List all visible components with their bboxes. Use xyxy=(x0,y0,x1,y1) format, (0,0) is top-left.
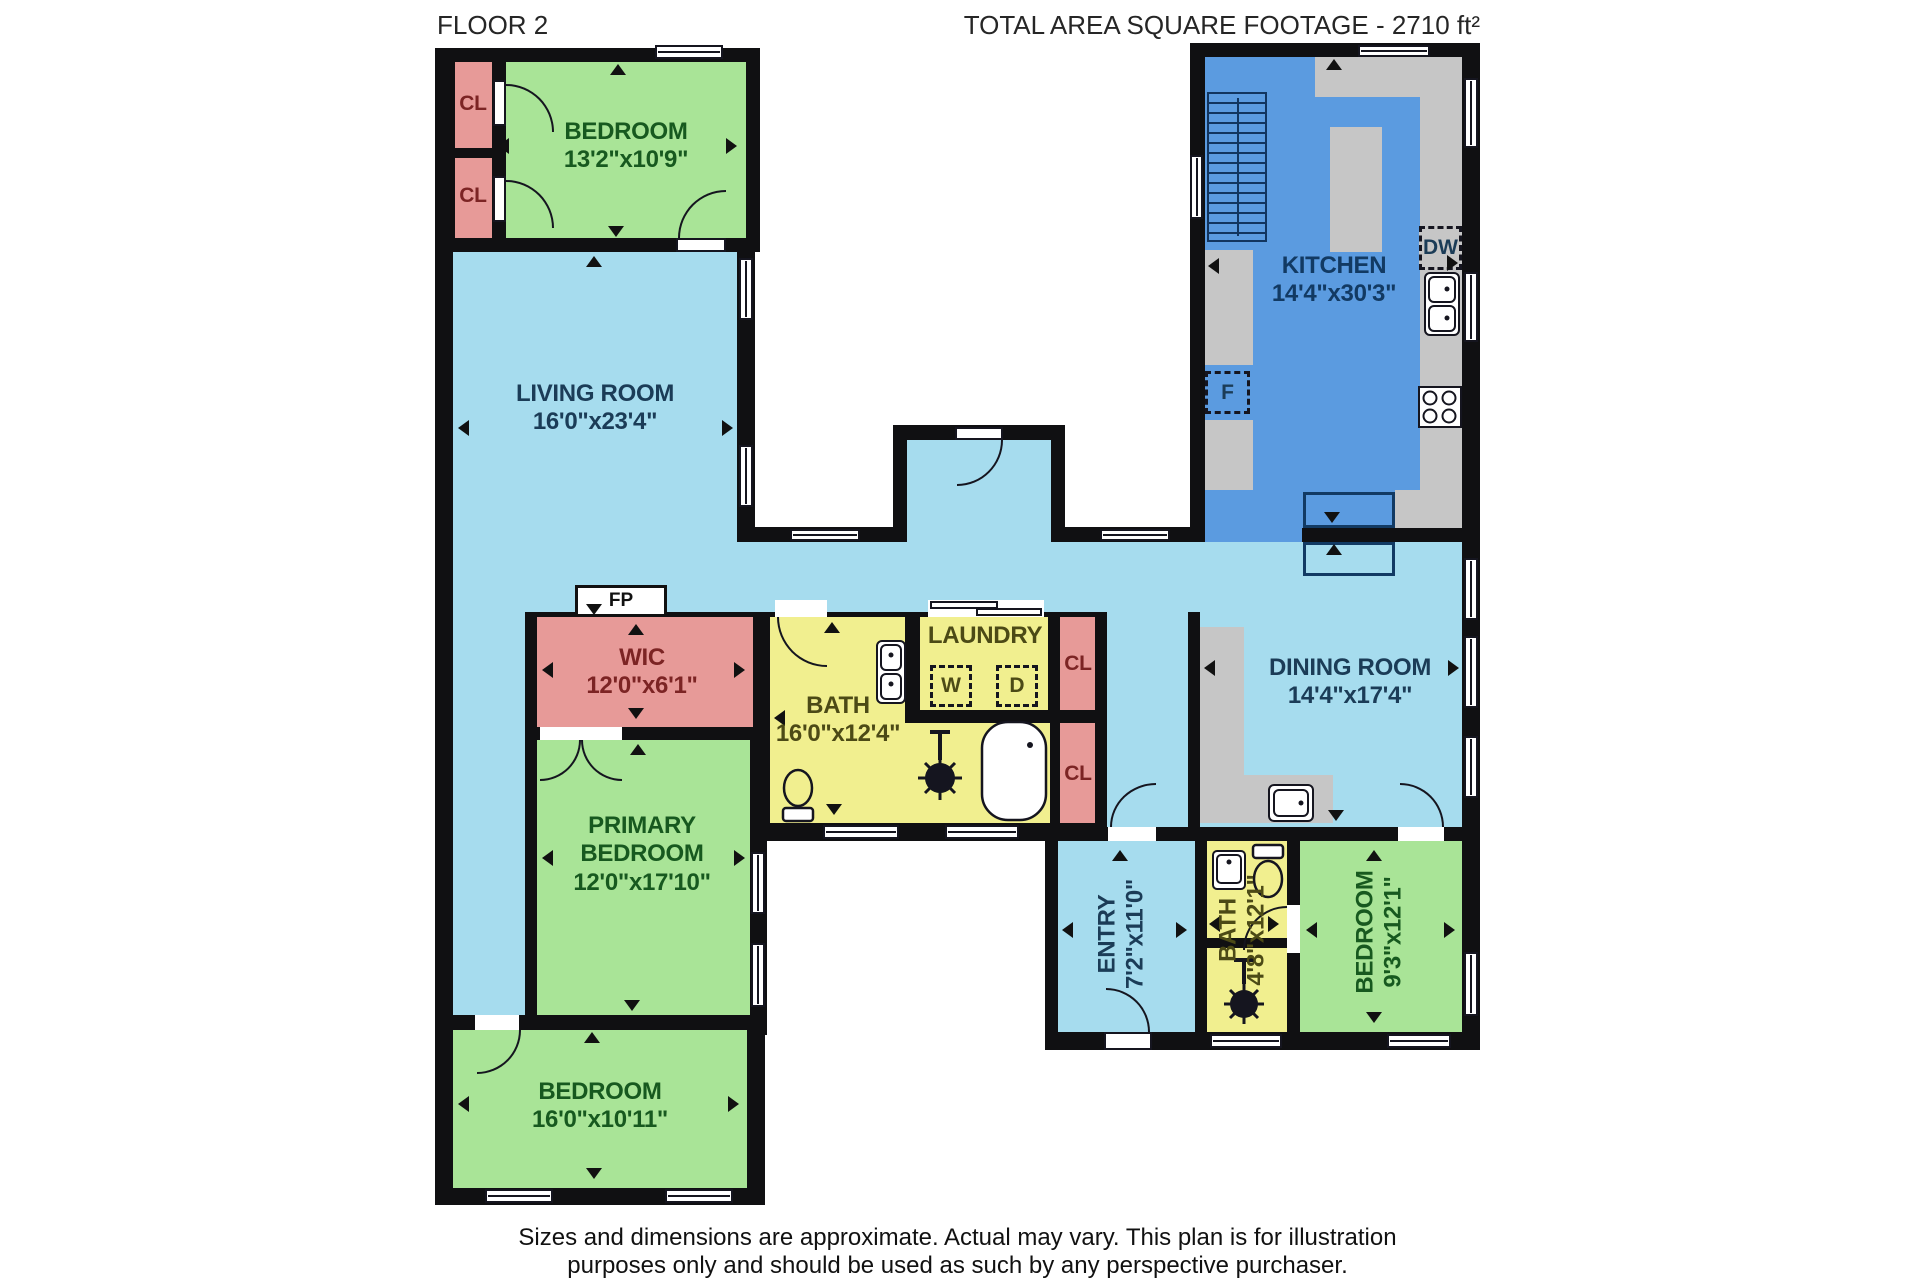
bath-main-toilet-icon xyxy=(778,768,818,824)
arrow-icon xyxy=(734,662,745,678)
living-room-label: LIVING ROOM 16'0"x23'4" xyxy=(516,380,674,437)
window xyxy=(1358,45,1430,57)
closet-text: CL xyxy=(459,92,486,117)
window xyxy=(1464,78,1478,148)
arrow-icon xyxy=(728,1096,739,1112)
room-dims: 14'4"x30'3" xyxy=(1272,280,1396,308)
arrow-icon xyxy=(734,850,745,866)
bedroom-top-left-label: BEDROOM 13'2"x10'9" xyxy=(564,118,688,175)
window xyxy=(1387,1034,1451,1048)
arrow-icon xyxy=(1306,922,1317,938)
floor-plan: FLOOR 2 TOTAL AREA SQUARE FOOTAGE - 2710… xyxy=(0,0,1920,1280)
arrow-icon xyxy=(1326,59,1342,70)
kitchen-sink-icon xyxy=(1424,272,1460,336)
room-name: WIC xyxy=(586,644,697,672)
arrow-icon xyxy=(824,622,840,633)
arrow-icon xyxy=(458,420,469,436)
room-name: BEDROOM xyxy=(573,840,710,868)
arrow-icon xyxy=(608,226,624,237)
window xyxy=(1464,272,1478,342)
floor-title: FLOOR 2 xyxy=(437,10,548,41)
window xyxy=(1464,952,1478,1016)
alcove-door xyxy=(955,427,1003,440)
closet-text: CL xyxy=(1064,652,1091,677)
window xyxy=(823,825,899,839)
window xyxy=(1464,558,1478,620)
laundry-slider-panel-2 xyxy=(976,608,1042,616)
living-strip xyxy=(453,612,525,1015)
window xyxy=(485,1189,553,1203)
bath-main-label: BATH 16'0"x12'4" xyxy=(776,692,900,749)
stove-icon xyxy=(1418,386,1462,428)
closet-text: CL xyxy=(1064,762,1091,787)
room-name: BEDROOM xyxy=(1352,870,1380,993)
bath-small-door-gap xyxy=(1287,905,1300,953)
arrow-icon xyxy=(586,256,602,267)
fridge: F xyxy=(1205,371,1250,414)
window xyxy=(1100,529,1170,541)
room-name: DINING ROOM xyxy=(1269,654,1431,682)
dining-room-top xyxy=(1097,542,1462,612)
arrow-icon xyxy=(584,1032,600,1043)
fridge-label: F xyxy=(1221,381,1234,405)
window xyxy=(739,258,753,320)
arrow-icon xyxy=(1112,850,1128,861)
arrow-icon xyxy=(1366,1012,1382,1023)
window xyxy=(665,1189,733,1203)
wall-bath-laundry xyxy=(905,617,920,723)
room-dims: 7'2"x11'0" xyxy=(1122,879,1150,989)
fireplace-arrow-icon xyxy=(586,604,602,615)
arrow-icon xyxy=(1324,512,1340,523)
window xyxy=(655,45,723,59)
window xyxy=(1464,736,1478,798)
arrow-icon xyxy=(586,1168,602,1179)
window xyxy=(790,529,860,541)
total-area-title: TOTAL AREA SQUARE FOOTAGE - 2710 ft² xyxy=(900,10,1480,41)
bedroom-bottom-right-label: BEDROOM 9'3"x12'1" xyxy=(1352,870,1409,993)
dining-counter-vertical xyxy=(1200,627,1244,790)
closet-1-door xyxy=(493,80,506,126)
room-name: LIVING ROOM xyxy=(516,380,674,408)
room-name: BEDROOM xyxy=(532,1078,668,1106)
room-dims: 12'0"x6'1" xyxy=(586,672,697,700)
arrow-icon xyxy=(1208,258,1219,274)
laundry-label: LAUNDRY xyxy=(928,622,1042,650)
disclaimer-line-2: purposes only and should be used as such… xyxy=(435,1252,1480,1280)
dryer: D xyxy=(996,665,1038,707)
shower-icon xyxy=(918,728,962,808)
closet-3-label: CL xyxy=(1064,652,1091,677)
window xyxy=(751,852,765,914)
dining-room-label: DINING ROOM 14'4"x17'4" xyxy=(1269,654,1431,711)
staircase xyxy=(1207,92,1267,242)
wic-double-door-gap xyxy=(540,727,622,740)
arrow-icon xyxy=(624,1000,640,1011)
room-dims: 12'0"x17'10" xyxy=(573,869,710,897)
arrow-icon xyxy=(610,64,626,75)
arrow-icon xyxy=(628,624,644,635)
room-name: LAUNDRY xyxy=(928,622,1042,650)
room-dims: 16'0"x10'11" xyxy=(532,1106,668,1134)
closet-4-label: CL xyxy=(1064,762,1091,787)
arrow-icon xyxy=(542,850,553,866)
arrow-icon xyxy=(1448,660,1459,676)
dining-door-gap-1 xyxy=(1108,827,1156,841)
arrow-icon xyxy=(630,744,646,755)
kitchen-opening xyxy=(1205,528,1302,542)
room-dims: 16'0"x23'4" xyxy=(516,408,674,436)
room-name: KITCHEN xyxy=(1272,252,1396,280)
kitchen-label: KITCHEN 14'4"x30'3" xyxy=(1272,252,1396,309)
arrow-icon xyxy=(498,138,509,154)
bedroom-bottom-left-label: BEDROOM 16'0"x10'11" xyxy=(532,1078,668,1135)
arrow-icon xyxy=(726,138,737,154)
washer-label: W xyxy=(941,674,961,698)
kitchen-counter-left-b xyxy=(1205,420,1253,490)
wall-dining-stub xyxy=(1188,612,1200,827)
disclaimer-line-1: Sizes and dimensions are approximate. Ac… xyxy=(435,1224,1480,1252)
arrow-icon xyxy=(826,804,842,815)
room-name: BATH xyxy=(776,692,900,720)
closet-1-label: CL xyxy=(459,92,486,117)
room-dims: 13'2"x10'9" xyxy=(564,146,688,174)
washer: W xyxy=(930,665,972,707)
primary-bedroom-label: PRIMARY BEDROOM 12'0"x17'10" xyxy=(573,812,710,897)
arrow-icon xyxy=(542,662,553,678)
arrow-icon xyxy=(628,708,644,719)
arrow-icon xyxy=(1328,810,1344,821)
kitchen-island xyxy=(1330,127,1382,252)
window xyxy=(1190,155,1203,219)
fireplace-label: FP xyxy=(609,590,633,611)
window xyxy=(1210,1034,1282,1048)
bathtub-icon xyxy=(980,720,1048,822)
closet-text: CL xyxy=(459,184,486,209)
bath-small-label: BATH 4'8"x12'1" xyxy=(1215,874,1272,985)
window xyxy=(739,445,753,507)
dryer-label: D xyxy=(1009,674,1024,698)
room-name: PRIMARY xyxy=(573,812,710,840)
arrow-icon xyxy=(458,1096,469,1112)
arrow-icon xyxy=(1444,922,1455,938)
bedroom-top-left-door xyxy=(676,238,726,252)
window xyxy=(945,825,1019,839)
window xyxy=(1464,636,1478,708)
arrow-icon xyxy=(1062,922,1073,938)
room-name: BEDROOM xyxy=(564,118,688,146)
arrow-icon xyxy=(1204,660,1215,676)
closet-2-door xyxy=(493,176,506,222)
dining-sink-icon xyxy=(1268,784,1314,822)
room-name: ENTRY xyxy=(1094,879,1122,989)
arrow-icon xyxy=(1176,922,1187,938)
entry-label: ENTRY 7'2"x11'0" xyxy=(1094,879,1151,989)
arrow-icon xyxy=(1326,544,1342,555)
dining-door-gap-2 xyxy=(1398,827,1444,841)
arrow-icon xyxy=(722,420,733,436)
arrow-icon xyxy=(1366,850,1382,861)
room-dims: 4'8"x12'1" xyxy=(1243,874,1271,985)
window xyxy=(751,943,765,1007)
bath-main-door-gap xyxy=(775,600,827,617)
kitchen-cabinet-1 xyxy=(1303,492,1395,528)
entry-front-door xyxy=(1104,1032,1152,1050)
room-dims: 14'4"x17'4" xyxy=(1269,682,1431,710)
kitchen-cabinet-2 xyxy=(1303,542,1395,576)
room-name: BATH xyxy=(1215,874,1243,985)
room-dims: 9'3"x12'1" xyxy=(1380,870,1408,993)
room-dims: 16'0"x12'4" xyxy=(776,720,900,748)
kitchen-counter-corner xyxy=(1395,490,1462,528)
closet-2-label: CL xyxy=(459,184,486,209)
arrow-icon xyxy=(1447,255,1458,271)
wic-label: WIC 12'0"x6'1" xyxy=(586,644,697,701)
bedroom-bl-door-gap xyxy=(475,1015,519,1030)
